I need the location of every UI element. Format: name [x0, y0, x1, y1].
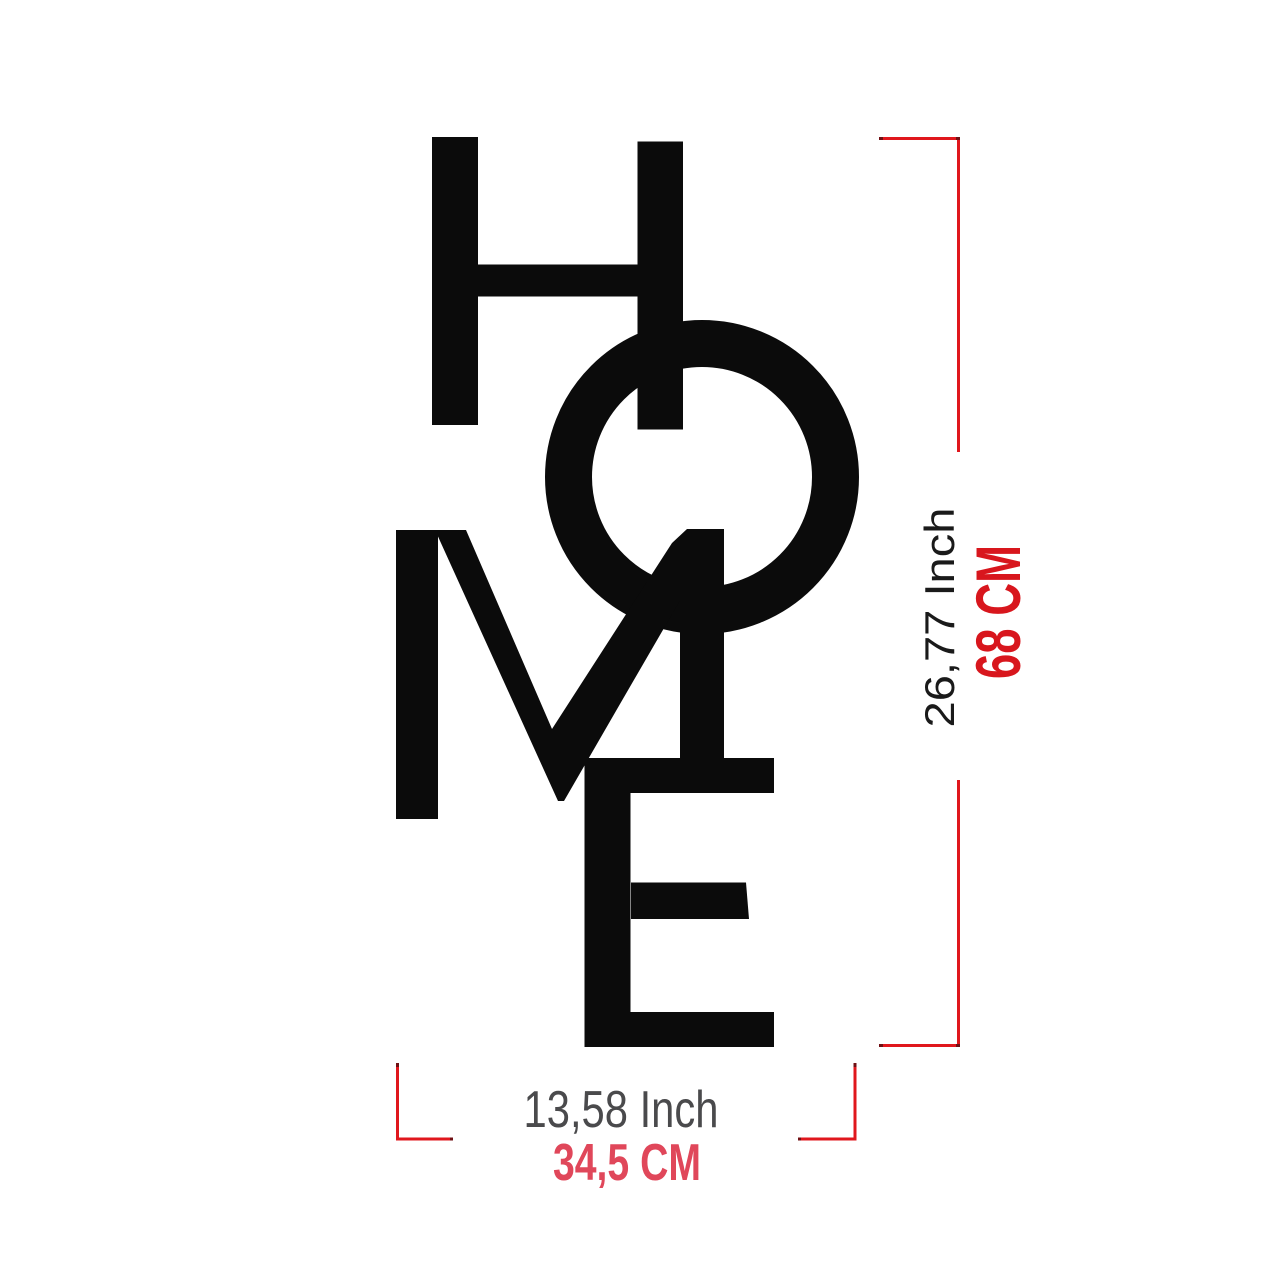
svg-text:68 CM: 68 CM: [964, 545, 1034, 679]
svg-text:26,77 Inch: 26,77 Inch: [916, 508, 963, 728]
svg-text:13,58 Inch: 13,58 Inch: [524, 1081, 719, 1139]
svg-text:34,5 CM: 34,5 CM: [553, 1134, 701, 1192]
